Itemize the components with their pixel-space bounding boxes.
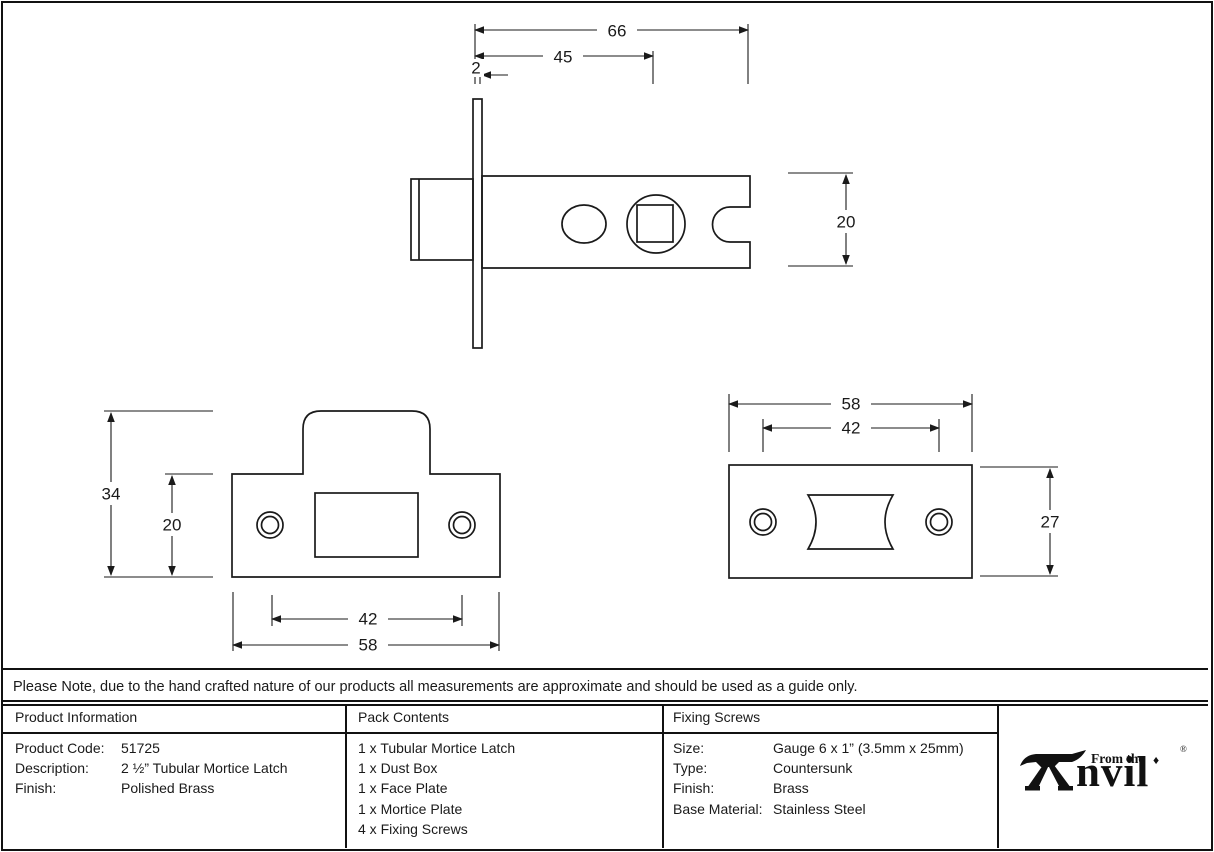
dim-plate-height-label: 20 (163, 516, 182, 535)
face-plate-outline (729, 465, 972, 578)
strike-plate-dim-labels: 34 20 42 58 (101, 482, 388, 655)
description-value: 2 ½” Tubular Mortice Latch (121, 759, 288, 777)
base-material-label: Base Material: (673, 800, 762, 818)
pack-contents-header: Pack Contents (358, 708, 449, 726)
note-box-top-line (2, 668, 1208, 670)
dim-case-height-label: 20 (837, 213, 856, 232)
spindle-square-hole (637, 205, 673, 242)
screw-hole-left-inner (262, 517, 279, 534)
faceplate-edge (473, 99, 482, 348)
screw-finish-value: Brass (773, 779, 809, 797)
strike-plate-latch-hole (315, 493, 418, 557)
latch-side-view-dim-labels: 66 45 2 20 (469, 19, 856, 233)
screw-size-value: Gauge 6 x 1” (3.5mm x 25mm) (773, 739, 964, 757)
measurement-note: Please Note, due to the hand crafted nat… (13, 678, 857, 696)
pack-item: 1 x Tubular Mortice Latch (358, 739, 515, 757)
case-slot-hole (562, 205, 606, 243)
product-code-value: 51725 (121, 739, 160, 757)
screw-type-value: Countersunk (773, 759, 852, 777)
dim-backset-label: 45 (554, 48, 573, 67)
base-material-value: Stainless Steel (773, 800, 866, 818)
brand-logo: From the ♦ nvil ® (997, 704, 1208, 848)
dim-plate-width-label: 58 (359, 636, 378, 655)
description-label: Description: (15, 759, 89, 777)
dim-plate-height-label: 27 (1041, 513, 1060, 532)
pack-item: 4 x Fixing Screws (358, 820, 468, 838)
pack-item: 1 x Mortice Plate (358, 800, 462, 818)
technical-drawing: 66 45 2 20 (0, 0, 1214, 664)
dim-screw-centres-label: 42 (842, 419, 861, 438)
dim-plate-width-label: 58 (842, 395, 861, 414)
product-information-header: Product Information (15, 708, 137, 726)
screw-hole-right-inner (454, 517, 471, 534)
latch-case (482, 176, 750, 268)
face-plate-drawing (729, 465, 972, 578)
screw-type-label: Type: (673, 759, 707, 777)
spec-sheet: 66 45 2 20 (0, 0, 1214, 852)
table-column-divider-1 (345, 704, 347, 848)
strike-plate-outline (232, 411, 500, 577)
dim-faceplate-thickness-label: 2 (471, 59, 480, 78)
dim-overall-length-label: 66 (608, 22, 627, 41)
dim-screw-centres-label: 42 (359, 610, 378, 629)
spindle-boss (627, 195, 685, 253)
latch-side-view-dimensions (475, 24, 853, 266)
screw-hole-right-inner (931, 514, 948, 531)
screw-size-label: Size: (673, 739, 704, 757)
strike-plate-drawing (232, 411, 500, 577)
latch-side-view-drawing (411, 99, 750, 348)
screw-hole-left-inner (755, 514, 772, 531)
face-plate-bolt-hole (808, 495, 893, 549)
finish-value: Polished Brass (121, 779, 214, 797)
screw-finish-label: Finish: (673, 779, 714, 797)
logo-word-text: nvil (1076, 753, 1149, 793)
registered-trademark-icon: ® (1180, 744, 1187, 754)
pack-item: 1 x Dust Box (358, 759, 437, 777)
note-box-bottom-line (2, 700, 1208, 702)
fixing-screws-header: Fixing Screws (673, 708, 760, 726)
pack-item: 1 x Face Plate (358, 779, 448, 797)
dim-overall-height-label: 34 (102, 485, 121, 504)
product-code-label: Product Code: (15, 739, 105, 757)
face-plate-dim-labels: 58 42 27 (831, 393, 1060, 533)
table-header-divider (2, 732, 998, 734)
logo-diamond-icon: ♦ (1153, 753, 1159, 767)
table-column-divider-2 (662, 704, 664, 848)
latch-bolt (411, 179, 473, 260)
finish-label: Finish: (15, 779, 56, 797)
